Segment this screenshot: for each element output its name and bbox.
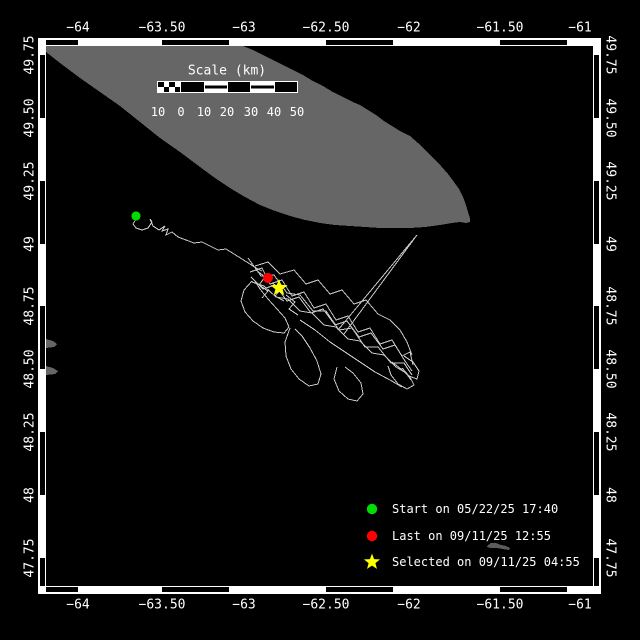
scale-bar-number: 0 bbox=[177, 105, 184, 119]
last-marker-dot-icon bbox=[263, 273, 273, 283]
axis-tick-bottom: −62.50 bbox=[303, 598, 350, 613]
scale-checker-cell bbox=[175, 87, 181, 92]
axis-tick-top: −63.50 bbox=[139, 21, 186, 36]
legend-label: Selected on 09/11/25 04:55 bbox=[392, 555, 580, 569]
legend-label: Start on 05/22/25 17:40 bbox=[392, 502, 558, 516]
frame-zebra-bar bbox=[40, 55, 45, 118]
frame-zebra-bar bbox=[326, 587, 393, 592]
scale-bar-segment-checker bbox=[158, 82, 180, 92]
legend-row: Last on 09/11/25 12:55 bbox=[360, 526, 551, 546]
scale-bar-number: 30 bbox=[244, 105, 258, 119]
frame-zebra-bar bbox=[40, 181, 45, 244]
track-segment bbox=[285, 328, 321, 386]
frame-zebra-bar bbox=[40, 306, 45, 369]
scale-bar-segment-striped bbox=[205, 82, 227, 92]
axis-tick-top: −62 bbox=[397, 21, 420, 36]
scale-bar-number: 20 bbox=[220, 105, 234, 119]
axis-tick-left: 48 bbox=[23, 487, 38, 503]
frame-zebra-bar bbox=[500, 40, 567, 45]
axis-tick-bottom: −64 bbox=[66, 598, 89, 613]
axis-tick-bottom: −63 bbox=[232, 598, 255, 613]
tracking-map: Scale (km) −64−63.50−63−62.50−62−61.50−6… bbox=[0, 0, 640, 640]
frame-zebra-bar bbox=[40, 558, 45, 586]
axis-tick-left: 49 bbox=[23, 236, 38, 252]
axis-tick-right: 48 bbox=[603, 487, 618, 503]
track-segment bbox=[388, 362, 414, 389]
frame-zebra-bar bbox=[46, 40, 78, 45]
scale-bar-segment-black bbox=[181, 82, 203, 92]
frame-zebra-bar bbox=[594, 55, 599, 118]
axis-tick-left: 49.50 bbox=[23, 98, 38, 137]
selected-marker-star-icon bbox=[270, 279, 287, 295]
legend-star-icon bbox=[360, 552, 384, 572]
axis-tick-bottom: −63.50 bbox=[139, 598, 186, 613]
axis-tick-right: 49.50 bbox=[603, 98, 618, 137]
frame-zebra-bar bbox=[594, 432, 599, 495]
axis-tick-right: 47.75 bbox=[603, 538, 618, 577]
legend-row: Selected on 09/11/25 04:55 bbox=[360, 552, 580, 572]
map-frame-bottom bbox=[38, 586, 601, 594]
coast-nub-2 bbox=[46, 366, 58, 375]
map-frame-top bbox=[38, 38, 601, 46]
axis-tick-bottom: −61 bbox=[568, 598, 591, 613]
axis-tick-left: 49.75 bbox=[23, 35, 38, 74]
track-segment bbox=[334, 367, 363, 401]
axis-tick-top: −63 bbox=[232, 21, 255, 36]
legend-dot-icon bbox=[360, 499, 384, 519]
map-frame-right bbox=[593, 38, 601, 594]
scale-bar-number: 40 bbox=[267, 105, 281, 119]
scale-bar-number: 10 bbox=[151, 105, 165, 119]
axis-tick-left: 47.75 bbox=[23, 538, 38, 577]
axis-tick-top: −61.50 bbox=[477, 21, 524, 36]
axis-tick-right: 48.50 bbox=[603, 349, 618, 388]
axis-tick-top: −61 bbox=[568, 21, 591, 36]
axis-tick-right: 48.75 bbox=[603, 286, 618, 325]
frame-zebra-bar bbox=[162, 587, 229, 592]
frame-zebra-bar bbox=[594, 181, 599, 244]
track-segment bbox=[133, 219, 262, 271]
axis-tick-left: 49.25 bbox=[23, 161, 38, 200]
start-marker-dot-icon bbox=[132, 212, 141, 221]
frame-zebra-bar bbox=[326, 40, 393, 45]
axis-tick-right: 48.25 bbox=[603, 412, 618, 451]
legend-dot-icon bbox=[360, 526, 384, 546]
axis-tick-right: 49.75 bbox=[603, 35, 618, 74]
scale-bar-segment-striped bbox=[251, 82, 273, 92]
axis-tick-bottom: −61.50 bbox=[477, 598, 524, 613]
track-segment bbox=[250, 268, 413, 365]
axis-tick-right: 49.25 bbox=[603, 161, 618, 200]
axis-tick-top: −64 bbox=[66, 21, 89, 36]
scale-bar-number: 50 bbox=[290, 105, 304, 119]
legend-label: Last on 09/11/25 12:55 bbox=[392, 529, 551, 543]
frame-zebra-bar bbox=[594, 306, 599, 369]
frame-zebra-bar bbox=[500, 587, 567, 592]
frame-zebra-bar bbox=[162, 40, 229, 45]
scale-bar-segment-black bbox=[275, 82, 297, 92]
scale-bar bbox=[157, 81, 298, 93]
axis-tick-left: 48.25 bbox=[23, 412, 38, 451]
axis-tick-top: −62.50 bbox=[303, 21, 350, 36]
axis-tick-left: 48.75 bbox=[23, 286, 38, 325]
scale-bar-number: 10 bbox=[197, 105, 211, 119]
legend-row: Start on 05/22/25 17:40 bbox=[360, 499, 558, 519]
frame-zebra-bar bbox=[46, 587, 78, 592]
scale-bar-title: Scale (km) bbox=[188, 64, 266, 79]
track-segment bbox=[300, 320, 402, 387]
axis-tick-left: 48.50 bbox=[23, 349, 38, 388]
frame-zebra-bar bbox=[40, 432, 45, 495]
scale-bar-segment-black bbox=[228, 82, 250, 92]
axis-tick-right: 49 bbox=[603, 236, 618, 252]
axis-tick-bottom: −62 bbox=[397, 598, 420, 613]
frame-zebra-bar bbox=[594, 558, 599, 586]
map-frame-left bbox=[38, 38, 46, 594]
coast-nub-1 bbox=[46, 339, 57, 348]
